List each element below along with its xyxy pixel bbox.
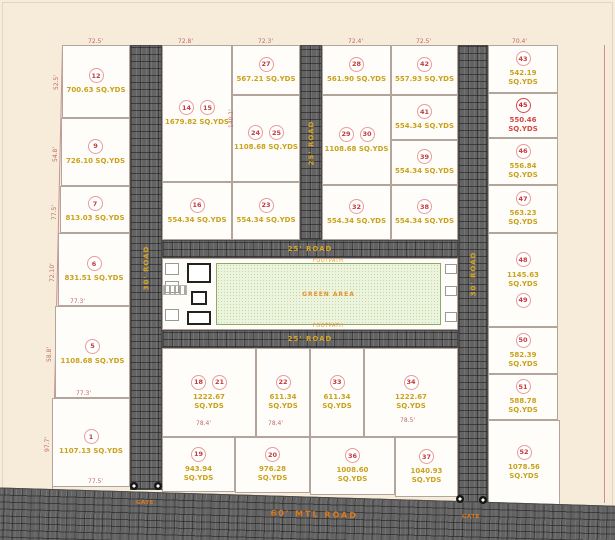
plot-number-badge: 38 (417, 199, 432, 214)
plot-number-row: 19 (191, 447, 206, 462)
dimension-label: 72.4' (348, 38, 363, 45)
plot-area-label: 1040.93 SQ.YDS (404, 467, 450, 485)
plot-number-row: 28 (349, 57, 364, 72)
plot-number-badge: 36 (345, 448, 360, 463)
dimension-label: 78.4' (268, 420, 283, 427)
lawn-area: GREEN AREA (216, 263, 441, 325)
plot-9: 9726.10 SQ.YDS (61, 118, 130, 186)
plot-area-label: 554.34 SQ.YDS (395, 217, 454, 226)
gate-label: GATE (462, 514, 480, 520)
dimension-label: 70.4' (512, 38, 527, 45)
plot-area-label: 1078.56 SQ.YDS (501, 463, 547, 481)
plot-area-label: 1108.68 SQ.YDS (234, 143, 298, 152)
plot-29-30: 29301108.68 SQ.YDS (322, 95, 391, 185)
plot-number-badge: 21 (212, 375, 227, 390)
plot-area-label: 611.34 SQ.YDS (260, 393, 306, 411)
amenity-strip: FOOTPATH GREEN AREA FOOTPATH (162, 258, 458, 330)
dimension-label: 78.4' (196, 420, 211, 427)
plot-number-badge: 29 (339, 127, 354, 142)
plot-area-label: 567.21 SQ.YDS (236, 75, 295, 84)
road-right-vertical-label: 30' ROAD (469, 252, 477, 297)
plot-number-badge: 5 (85, 339, 100, 354)
road-right-vertical: 30' ROAD (458, 45, 488, 503)
dimension-label: 58.8' (46, 347, 53, 362)
plot-number-badge: 6 (87, 256, 102, 271)
plot-area-label: 1108.68 SQ.YDS (61, 357, 125, 366)
plot-number-badge: 32 (349, 199, 364, 214)
dimension-label: 52.5' (53, 75, 60, 90)
plot-area-label: 554.34 SQ.YDS (236, 216, 295, 225)
plot-36: 361008.60 SQ.YDS (310, 437, 395, 495)
plot-area-label: 976.28 SQ.YDS (250, 465, 296, 483)
footpath-label-bottom: FOOTPATH (313, 323, 343, 329)
plot-number-row: 7 (88, 196, 103, 211)
plot-number-badge: 52 (517, 445, 532, 460)
plot-number-row: 16 (190, 198, 205, 213)
plot-number-row: 9 (88, 139, 103, 154)
dimension-label: 97.7' (44, 437, 51, 452)
plot-number-row: 39 (417, 149, 432, 164)
plot-50: 50582.39 SQ.YDS (488, 327, 558, 374)
plot-28: 28561.90 SQ.YDS (322, 45, 391, 95)
parking-stall (165, 309, 179, 321)
plot-number-badge: 49 (516, 293, 531, 308)
plot-33: 33611.34 SQ.YDS (310, 348, 364, 437)
plot-27: 27567.21 SQ.YDS (232, 45, 300, 95)
plot-area-label: 582.39 SQ.YDS (500, 351, 546, 369)
plot-area-label: 1679.82 SQ.YDS (165, 118, 229, 127)
dimension-label: 54.8' (52, 147, 59, 162)
plot-37: 371040.93 SQ.YDS (395, 437, 458, 497)
road-bottom-main-label: 60' MTL ROAD (271, 508, 358, 520)
dimension-label: 77.5' (51, 205, 58, 220)
dimension-label: 72.8' (178, 38, 193, 45)
plot-number-row: 27 (259, 57, 274, 72)
plot-area-label: 1222.67 SQ.YDS (388, 393, 434, 411)
dimension-label: 140.1' (228, 109, 235, 128)
plot-number-badge: 43 (516, 51, 531, 66)
plot-number-badge: 46 (516, 144, 531, 159)
plot-number-row: 2425 (248, 125, 284, 140)
plot-area-label: 554.34 SQ.YDS (395, 167, 454, 176)
clubhouse-room (187, 263, 211, 283)
plot-number-badge: 9 (88, 139, 103, 154)
plot-45: 45550.46 SQ.YDS (488, 93, 558, 138)
parking-stall (445, 286, 457, 296)
plot-area-label: 563.23 SQ.YDS (500, 209, 546, 227)
plot-12: 12700.63 SQ.YDS (62, 45, 130, 118)
lawn-label: GREEN AREA (302, 291, 355, 298)
plot-number-badge: 25 (269, 125, 284, 140)
plot-area-label: 726.10 SQ.YDS (66, 157, 125, 166)
plot-number-badge: 45 (516, 98, 531, 113)
plot-area-label: 943.94 SQ.YDS (176, 465, 222, 483)
plot-number-row: 34 (404, 375, 419, 390)
plot-number-row: 36 (345, 448, 360, 463)
plot-42: 42557.93 SQ.YDS (391, 45, 458, 95)
plot-20: 20976.28 SQ.YDS (235, 437, 310, 493)
footpath-label-top: FOOTPATH (313, 258, 343, 264)
road-left-vertical: 30' ROAD (130, 45, 162, 490)
dimension-label: 72.5' (88, 38, 103, 45)
plot-number-badge: 37 (419, 449, 434, 464)
plot-number-row: 23 (259, 198, 274, 213)
plot-52: 521078.56 SQ.YDS (488, 420, 560, 505)
entrance-walkway (163, 285, 187, 295)
parking-stall (165, 263, 179, 275)
gate-post (456, 495, 464, 503)
dimension-label: 72.10' (49, 263, 56, 282)
plot-number-row: 47 (516, 191, 531, 206)
plot-number-badge: 20 (265, 447, 280, 462)
dimension-label: 77.5' (88, 478, 103, 485)
plot-number-badge: 16 (190, 198, 205, 213)
gate-post (479, 496, 487, 504)
clubhouse-room (191, 291, 207, 305)
plot-number-row: 42 (417, 57, 432, 72)
plot-47: 47563.23 SQ.YDS (488, 185, 558, 233)
plot-area-label: 554.34 SQ.YDS (167, 216, 226, 225)
plot-area-label: 556.84 SQ.YDS (500, 162, 546, 180)
plot-41: 41554.34 SQ.YDS (391, 95, 458, 140)
road-middle-vertical-label: 25' ROAD (307, 120, 315, 165)
dimension-label: 77.3' (76, 390, 91, 397)
road-amenity-top: 25' ROAD (162, 240, 458, 258)
plot-area-label: 1145.63 SQ.YDS (500, 271, 546, 289)
plot-48-49: 481145.63 SQ.YDS49 (488, 233, 558, 327)
site-plan-canvas: FOOTPATH GREEN AREA FOOTPATH 12700.63 SQ… (0, 0, 615, 540)
plot-area-label: 1108.68 SQ.YDS (325, 145, 389, 154)
plot-5: 51108.68 SQ.YDS (55, 306, 130, 398)
plot-number-badge: 33 (330, 375, 345, 390)
plot-39: 39554.34 SQ.YDS (391, 140, 458, 185)
plot-number-row: 12 (89, 68, 104, 83)
plot-number-badge: 23 (259, 198, 274, 213)
road-amenity-top-label: 25' ROAD (288, 245, 333, 253)
plot-number-badge: 30 (360, 127, 375, 142)
plot-area-label: 700.63 SQ.YDS (66, 86, 125, 95)
plot-24-25: 24251108.68 SQ.YDS (232, 95, 300, 182)
dimension-label: 72.5' (416, 38, 431, 45)
plot-14-15: 14151679.82 SQ.YDS (162, 45, 232, 182)
plot-1: 11107.13 SQ.YDS (52, 398, 130, 487)
plot-number-badge: 14 (179, 100, 194, 115)
plot-46: 46556.84 SQ.YDS (488, 138, 558, 185)
plot-number-row: 37 (419, 449, 434, 464)
plot-number-row: 33 (330, 375, 345, 390)
plot-number-badge: 47 (516, 191, 531, 206)
plot-number-row: 32 (349, 199, 364, 214)
plot-number-row: 1 (84, 429, 99, 444)
plot-number-badge: 51 (516, 379, 531, 394)
plot-number-row: 50 (516, 333, 531, 348)
plot-number-row: 51 (516, 379, 531, 394)
plot-number-badge: 28 (349, 57, 364, 72)
dimension-label: 72.3' (258, 38, 273, 45)
plot-number-badge: 15 (200, 100, 215, 115)
plot-number-badge: 12 (89, 68, 104, 83)
plot-area-label: 831.51 SQ.YDS (64, 274, 123, 283)
plot-number-row: 41 (417, 104, 432, 119)
plot-number-row: 46 (516, 144, 531, 159)
plot-number-row: 6 (87, 256, 102, 271)
plot-area-label: 550.46 SQ.YDS (500, 116, 546, 134)
plot-7: 7813.03 SQ.YDS (60, 186, 130, 233)
plot-number-badge: 41 (417, 104, 432, 119)
plot-number-row: 22 (276, 375, 291, 390)
clubhouse-room (187, 311, 211, 325)
plot-number-badge: 39 (417, 149, 432, 164)
plot-area-label: 611.34 SQ.YDS (314, 393, 360, 411)
plot-number-row: 1415 (179, 100, 215, 115)
boundary-line (604, 45, 605, 503)
dimension-label: 78.5' (400, 417, 415, 424)
plot-number-badge: 50 (516, 333, 531, 348)
plot-number-badge: 48 (516, 252, 531, 267)
plot-number-badge: 19 (191, 447, 206, 462)
plot-area-label: 557.93 SQ.YDS (395, 75, 454, 84)
plot-16: 16554.34 SQ.YDS (162, 182, 232, 240)
plot-number-badge: 18 (191, 375, 206, 390)
plot-number-row: 45 (516, 98, 531, 113)
plot-number-badge: 34 (404, 375, 419, 390)
plot-38: 38554.34 SQ.YDS (391, 185, 458, 240)
plot-number-badge: 22 (276, 375, 291, 390)
plot-32: 32554.34 SQ.YDS (322, 185, 391, 240)
plot-number-row: 43 (516, 51, 531, 66)
plot-area-label: 1222.67 SQ.YDS (186, 393, 232, 411)
plot-number-row: 20 (265, 447, 280, 462)
road-middle-vertical: 25' ROAD (300, 45, 322, 240)
road-amenity-bottom: 25' ROAD (162, 330, 458, 348)
plot-area-label: 813.03 SQ.YDS (65, 214, 124, 223)
plot-area-label: 588.78 SQ.YDS (500, 397, 546, 415)
plot-number-row: 2930 (339, 127, 375, 142)
plot-area-label: 561.90 SQ.YDS (327, 75, 386, 84)
plot-number-stack: 481145.63 SQ.YDS49 (500, 252, 546, 308)
parking-stall (445, 312, 457, 322)
plot-number-badge: 24 (248, 125, 263, 140)
gate-post (130, 482, 138, 490)
plot-area-label: 542.19 SQ.YDS (500, 69, 546, 87)
plot-area-label: 1008.60 SQ.YDS (330, 466, 376, 484)
plot-number-badge: 27 (259, 57, 274, 72)
plot-43: 43542.19 SQ.YDS (488, 45, 558, 93)
plot-number-badge: 42 (417, 57, 432, 72)
plot-51: 51588.78 SQ.YDS (488, 374, 558, 420)
plot-area-label: 554.34 SQ.YDS (327, 217, 386, 226)
plot-6: 6831.51 SQ.YDS (58, 233, 130, 306)
site-plan: FOOTPATH GREEN AREA FOOTPATH 12700.63 SQ… (0, 0, 615, 540)
plot-number-row: 5 (85, 339, 100, 354)
plot-number-badge: 1 (84, 429, 99, 444)
plot-number-row: 38 (417, 199, 432, 214)
parking-stall (445, 264, 457, 274)
plot-23: 23554.34 SQ.YDS (232, 182, 300, 240)
plot-area-label: 554.34 SQ.YDS (395, 122, 454, 131)
gate-label: GATE (136, 500, 154, 506)
gate-post (154, 482, 162, 490)
plot-area-label: 1107.13 SQ.YDS (59, 447, 123, 456)
road-left-vertical-label: 30' ROAD (142, 245, 150, 290)
plot-19: 19943.94 SQ.YDS (162, 437, 235, 492)
road-amenity-bottom-label: 25' ROAD (288, 335, 333, 343)
plot-number-badge: 7 (88, 196, 103, 211)
plot-number-row: 1821 (191, 375, 227, 390)
dimension-label: 77.3' (70, 298, 85, 305)
plot-number-row: 52 (517, 445, 532, 460)
